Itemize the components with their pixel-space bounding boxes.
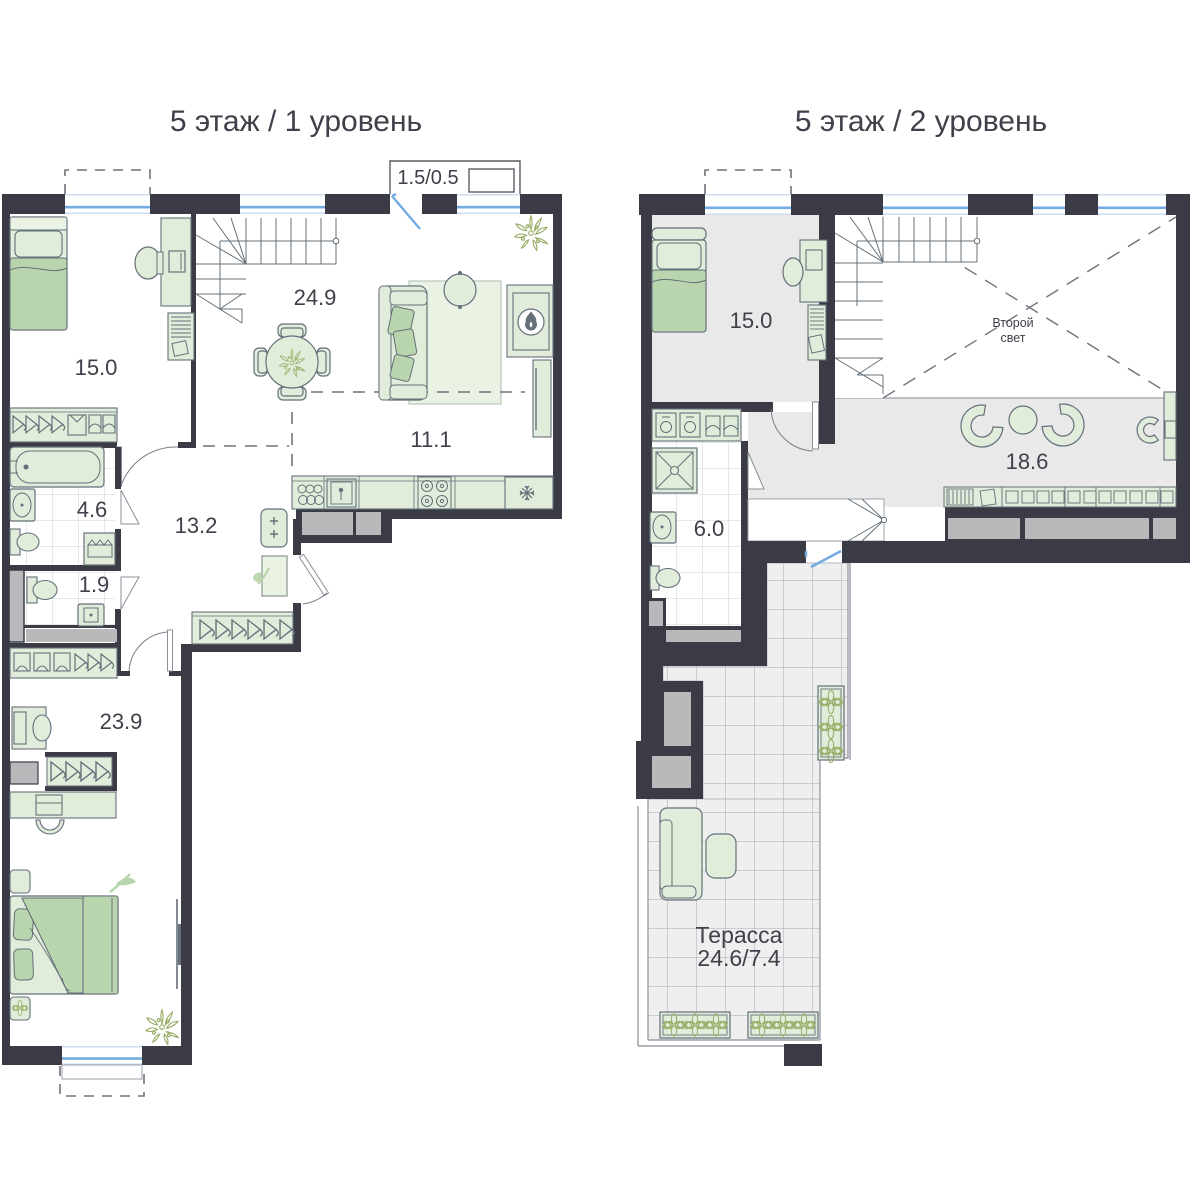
svg-text:18.6: 18.6	[1006, 449, 1049, 474]
svg-text:1.5/0.5: 1.5/0.5	[397, 167, 458, 189]
svg-text:1.9: 1.9	[79, 572, 110, 597]
svg-text:15.0: 15.0	[730, 308, 773, 333]
svg-text:свет: свет	[1000, 331, 1025, 345]
svg-text:5 этаж / 2 уровень: 5 этаж / 2 уровень	[795, 105, 1047, 138]
svg-text:Второй: Второй	[992, 316, 1033, 330]
svg-text:11.1: 11.1	[410, 427, 451, 452]
svg-text:24.6/7.4: 24.6/7.4	[697, 945, 780, 971]
svg-text:24.9: 24.9	[294, 285, 337, 310]
svg-text:15.0: 15.0	[75, 355, 118, 380]
svg-text:23.9: 23.9	[100, 709, 143, 734]
svg-text:13.2: 13.2	[175, 513, 218, 538]
svg-text:4.6: 4.6	[77, 497, 108, 522]
svg-text:5 этаж / 1 уровень: 5 этаж / 1 уровень	[170, 105, 422, 138]
svg-text:6.0: 6.0	[694, 516, 725, 541]
